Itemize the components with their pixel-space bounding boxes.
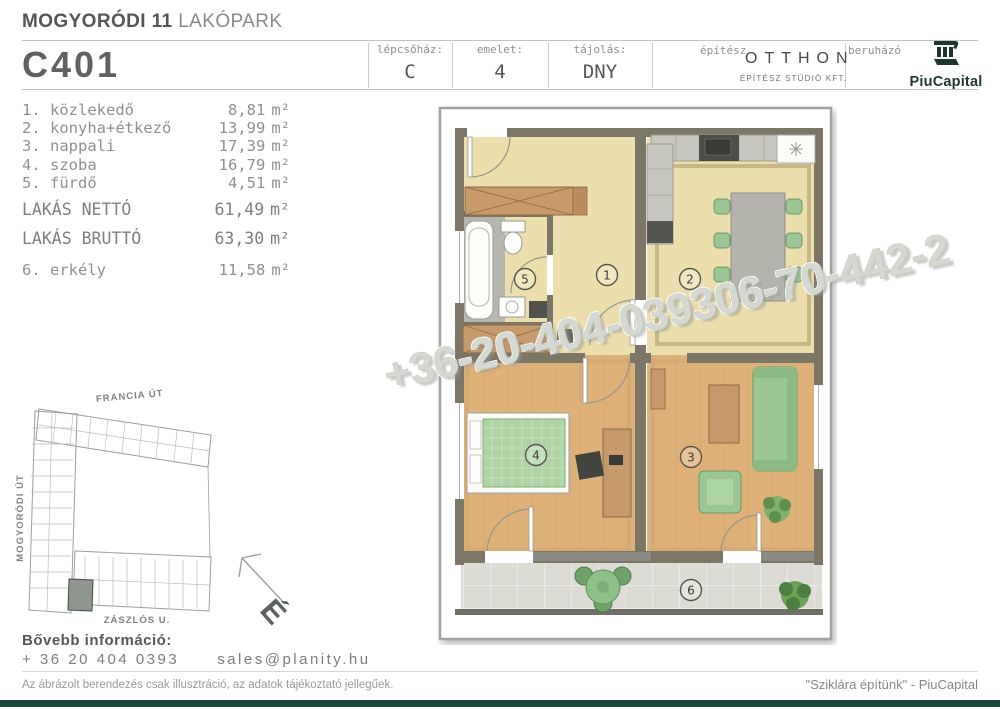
room-name: 3. nappali <box>22 137 115 155</box>
net-area: 61,49 <box>208 201 264 219</box>
unit-label: m² <box>270 201 290 219</box>
table-divider <box>652 43 653 88</box>
unit-label: m² <box>271 119 290 137</box>
unit-label: m² <box>270 230 290 248</box>
room-marker-3: 3 <box>687 451 695 465</box>
unit-code: C401 <box>22 44 120 86</box>
contact-line: + 36 20 404 0393sales@planity.hu <box>22 651 371 668</box>
unit-label: m² <box>271 174 290 192</box>
room-marker-1: 1 <box>603 269 611 283</box>
staircase-label: lépcsőház: <box>368 43 452 56</box>
project-name: MOGYORÓDI 11 <box>22 11 173 32</box>
footer-divider <box>22 671 978 672</box>
floor-plan: 1 2 3 4 5 6 <box>437 103 837 645</box>
orientation-label: tájolás: <box>548 43 652 56</box>
header-divider-bottom <box>22 89 978 90</box>
north-compass: É <box>222 538 302 630</box>
net-label: LAKÁS NETTÓ <box>22 201 131 219</box>
contact-phone: + 36 20 404 0393 <box>22 651 179 668</box>
room-name: 4. szoba <box>22 156 97 174</box>
room-area: 16,79 <box>209 156 265 174</box>
architect-logo: OTTHON ÉPÍTÉSZ STÚDIÓ KFT. <box>738 50 848 83</box>
room-marker-5: 5 <box>521 273 529 287</box>
balcony-row: 6. erkély11,58m² <box>22 261 290 279</box>
room-row: 3. nappali17,39m² <box>22 137 290 155</box>
room-name: 6. erkély <box>22 261 106 279</box>
room-name: 2. konyha+étkező <box>22 119 171 137</box>
unit-label: m² <box>271 101 290 119</box>
street-label-left: MOGYORÓDI ÚT <box>15 474 26 561</box>
slogan-text: "Sziklára építünk" - PiuCapital <box>805 677 978 692</box>
room-area: 4,51 <box>209 174 265 192</box>
architect-name: OTTHON <box>738 50 848 68</box>
site-plan: FRANCIA ÚT MOGYORÓDI ÚT ZÁSZLÓS U. <box>15 383 225 633</box>
room-marker-4: 4 <box>532 449 540 463</box>
header-divider-top <box>22 40 978 41</box>
room-area: 17,39 <box>209 137 265 155</box>
architect-subtitle: ÉPÍTÉSZ STÚDIÓ KFT. <box>738 74 848 83</box>
room-name: 5. fürdő <box>22 174 97 192</box>
room-area: 13,99 <box>209 119 265 137</box>
piucapital-column-icon <box>928 40 964 67</box>
gross-label: LAKÁS BRUTTÓ <box>22 230 141 248</box>
room-marker-2: 2 <box>686 273 694 287</box>
room-row: 5. fürdő4,51m² <box>22 174 290 192</box>
contact-email: sales@planity.hu <box>217 651 370 668</box>
cell-orientation: tájolás: DNY <box>548 43 652 89</box>
gross-area: 63,30 <box>208 230 264 248</box>
compass-letter: É <box>253 592 293 630</box>
staircase-value: C <box>368 61 452 83</box>
brand-bottom-bar <box>0 700 1000 707</box>
street-label-bottom: ZÁSZLÓS U. <box>104 614 170 626</box>
room-area: 11,58 <box>209 261 265 279</box>
unit-label: m² <box>271 156 290 174</box>
unit-label: m² <box>271 137 290 155</box>
contact-heading: Bővebb információ: <box>22 632 172 649</box>
floor-value: 4 <box>452 61 548 83</box>
gross-area-row: LAKÁS BRUTTÓ63,30m² <box>22 230 290 248</box>
room-row: 2. konyha+étkező13,99m² <box>22 119 290 137</box>
room-row: 1. közlekedő8,81m² <box>22 101 290 119</box>
project-title: MOGYORÓDI 11 LAKÓPARK <box>22 11 282 33</box>
orientation-value: DNY <box>548 61 652 83</box>
developer-logo: PiuCapital <box>898 40 994 90</box>
cell-floor: emelet: 4 <box>452 43 548 89</box>
developer-label: beruházó <box>848 44 901 57</box>
net-area-row: LAKÁS NETTÓ61,49m² <box>22 201 290 219</box>
site-plan-detail <box>30 412 210 612</box>
cell-staircase: lépcsőház: C <box>368 43 452 89</box>
developer-name: PiuCapital <box>898 74 994 90</box>
room-name: 1. közlekedő <box>22 101 134 119</box>
highlighted-unit <box>68 579 93 611</box>
room-area: 8,81 <box>209 101 265 119</box>
unit-label: m² <box>271 261 290 279</box>
room-marker-6: 6 <box>687 584 695 598</box>
project-suffix: LAKÓPARK <box>178 11 282 32</box>
room-list: 1. közlekedő8,81m² 2. konyha+étkező13,99… <box>22 101 290 280</box>
datasheet-page: MOGYORÓDI 11 LAKÓPARK C401 lépcsőház: C … <box>0 0 1000 707</box>
street-label-top: FRANCIA ÚT <box>95 387 163 405</box>
disclaimer-text: Az ábrázolt berendezés csak illusztráció… <box>22 679 393 691</box>
room-row: 4. szoba16,79m² <box>22 156 290 174</box>
floor-label: emelet: <box>452 43 548 56</box>
